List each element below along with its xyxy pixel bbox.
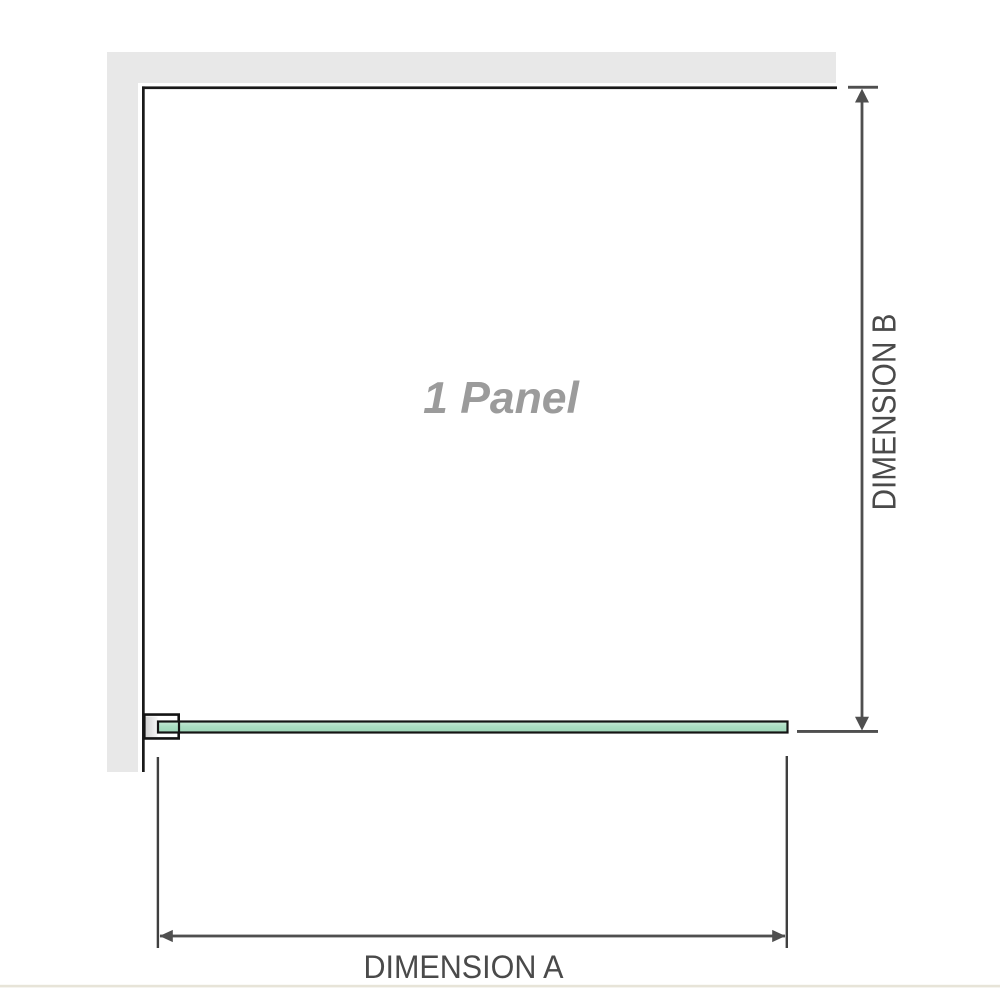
svg-text:1 Panel: 1 Panel (423, 374, 580, 423)
svg-text:DIMENSION B: DIMENSION B (866, 314, 903, 511)
svg-text:DIMENSION A: DIMENSION A (364, 949, 565, 985)
